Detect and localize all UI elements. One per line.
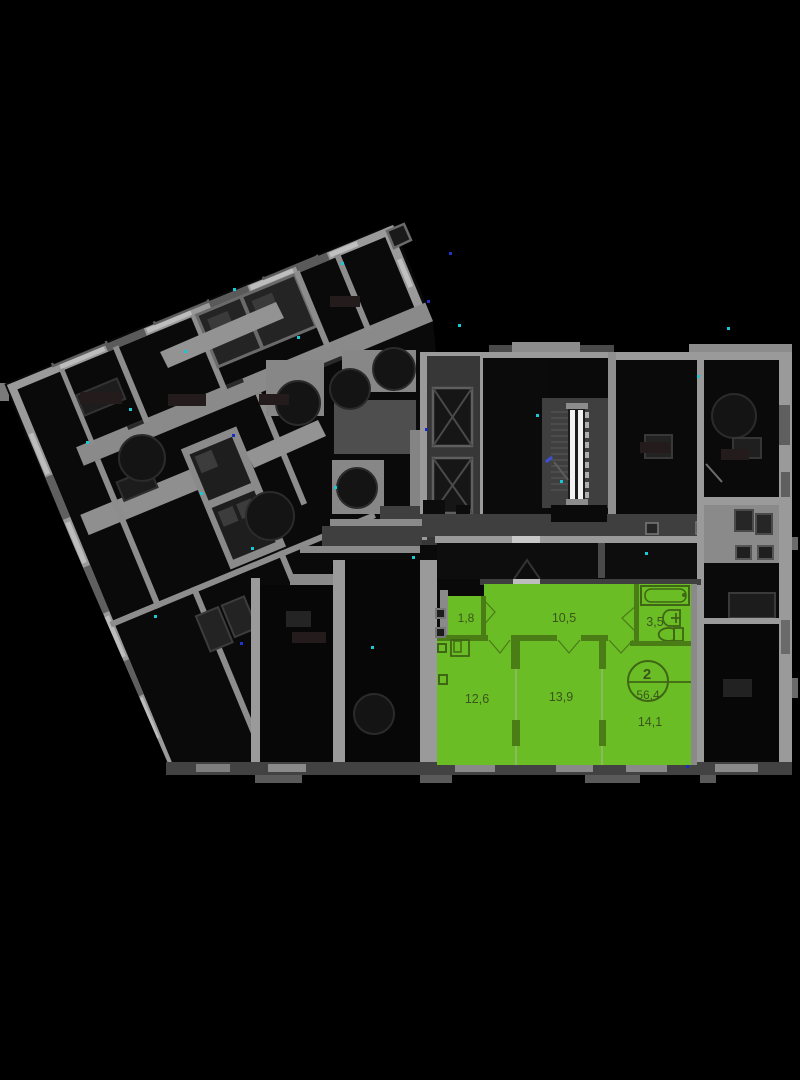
svg-text:2: 2 xyxy=(643,666,651,683)
svg-text:14,1: 14,1 xyxy=(638,715,662,729)
svg-text:12,6: 12,6 xyxy=(465,692,489,706)
svg-text:1,8: 1,8 xyxy=(458,611,475,625)
svg-text:3,5: 3,5 xyxy=(646,615,663,629)
svg-text:13,9: 13,9 xyxy=(549,690,573,704)
svg-text:56,4: 56,4 xyxy=(636,688,660,702)
svg-text:10,5: 10,5 xyxy=(552,611,576,625)
